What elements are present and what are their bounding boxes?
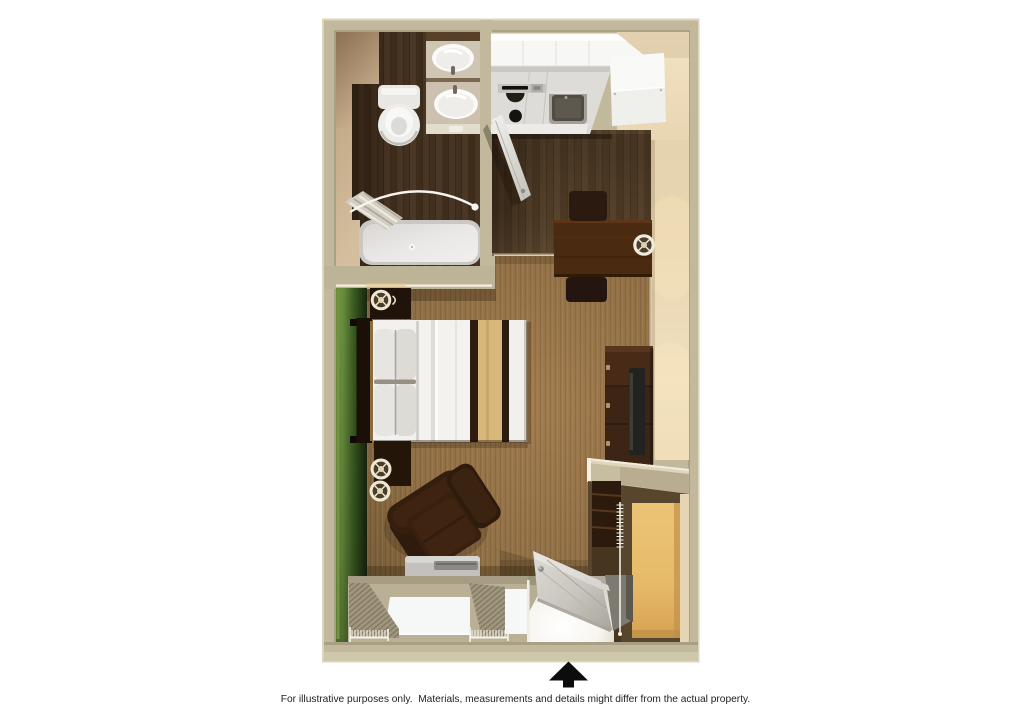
svg-text:For illustrative purposes only: For illustrative purposes only. Material… <box>281 694 750 705</box>
